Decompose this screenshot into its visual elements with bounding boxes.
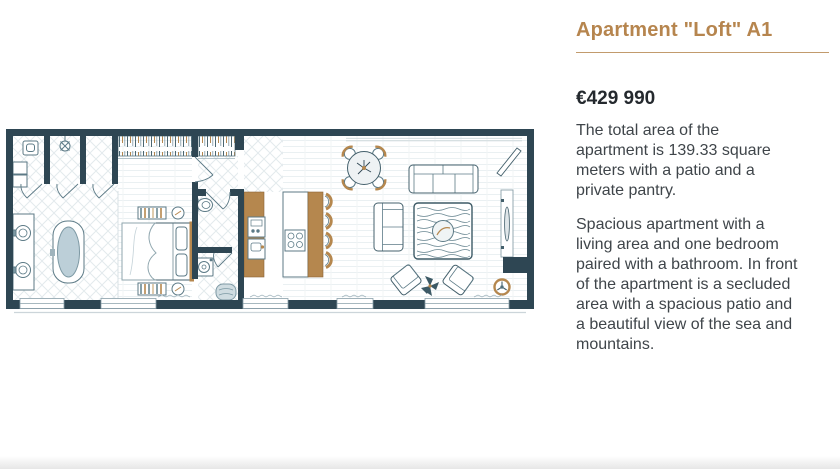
coffee-table bbox=[433, 221, 454, 242]
description-paragraph-1: The total area of the apartment is 139.3… bbox=[576, 121, 829, 201]
bathtub bbox=[50, 221, 84, 283]
kitchen-sink bbox=[248, 239, 265, 259]
wardrobe bbox=[118, 136, 192, 156]
section-bottom-fade bbox=[0, 456, 840, 469]
bench bbox=[138, 207, 166, 219]
tv-console bbox=[501, 190, 513, 257]
apartment-price: €429 990 bbox=[576, 87, 829, 111]
wardrobe bbox=[198, 136, 235, 156]
apartment-title: Apartment "Loft" A1 bbox=[576, 16, 829, 44]
dishwasher bbox=[248, 217, 265, 237]
side-table bbox=[172, 207, 184, 219]
loveseat bbox=[374, 203, 403, 251]
cabinet bbox=[13, 162, 27, 174]
double-vanity bbox=[13, 214, 34, 290]
description-paragraph-2: Spacious apartment with a living area an… bbox=[576, 215, 829, 355]
floor-plan bbox=[6, 129, 534, 321]
side-table bbox=[172, 283, 184, 295]
cooktop bbox=[285, 230, 305, 251]
kitchen bbox=[244, 192, 331, 277]
toilet bbox=[23, 141, 38, 155]
clock bbox=[495, 280, 510, 295]
bench bbox=[138, 283, 166, 295]
cabinet bbox=[13, 175, 27, 187]
pouf bbox=[216, 284, 236, 300]
sofa bbox=[409, 165, 478, 193]
title-divider bbox=[576, 52, 829, 53]
dining-table bbox=[340, 144, 387, 191]
tv bbox=[505, 207, 510, 241]
double-bed bbox=[122, 222, 194, 282]
rug bbox=[414, 203, 472, 259]
apartment-details-panel: Apartment "Loft" A1 €429 990 The total a… bbox=[576, 0, 829, 355]
